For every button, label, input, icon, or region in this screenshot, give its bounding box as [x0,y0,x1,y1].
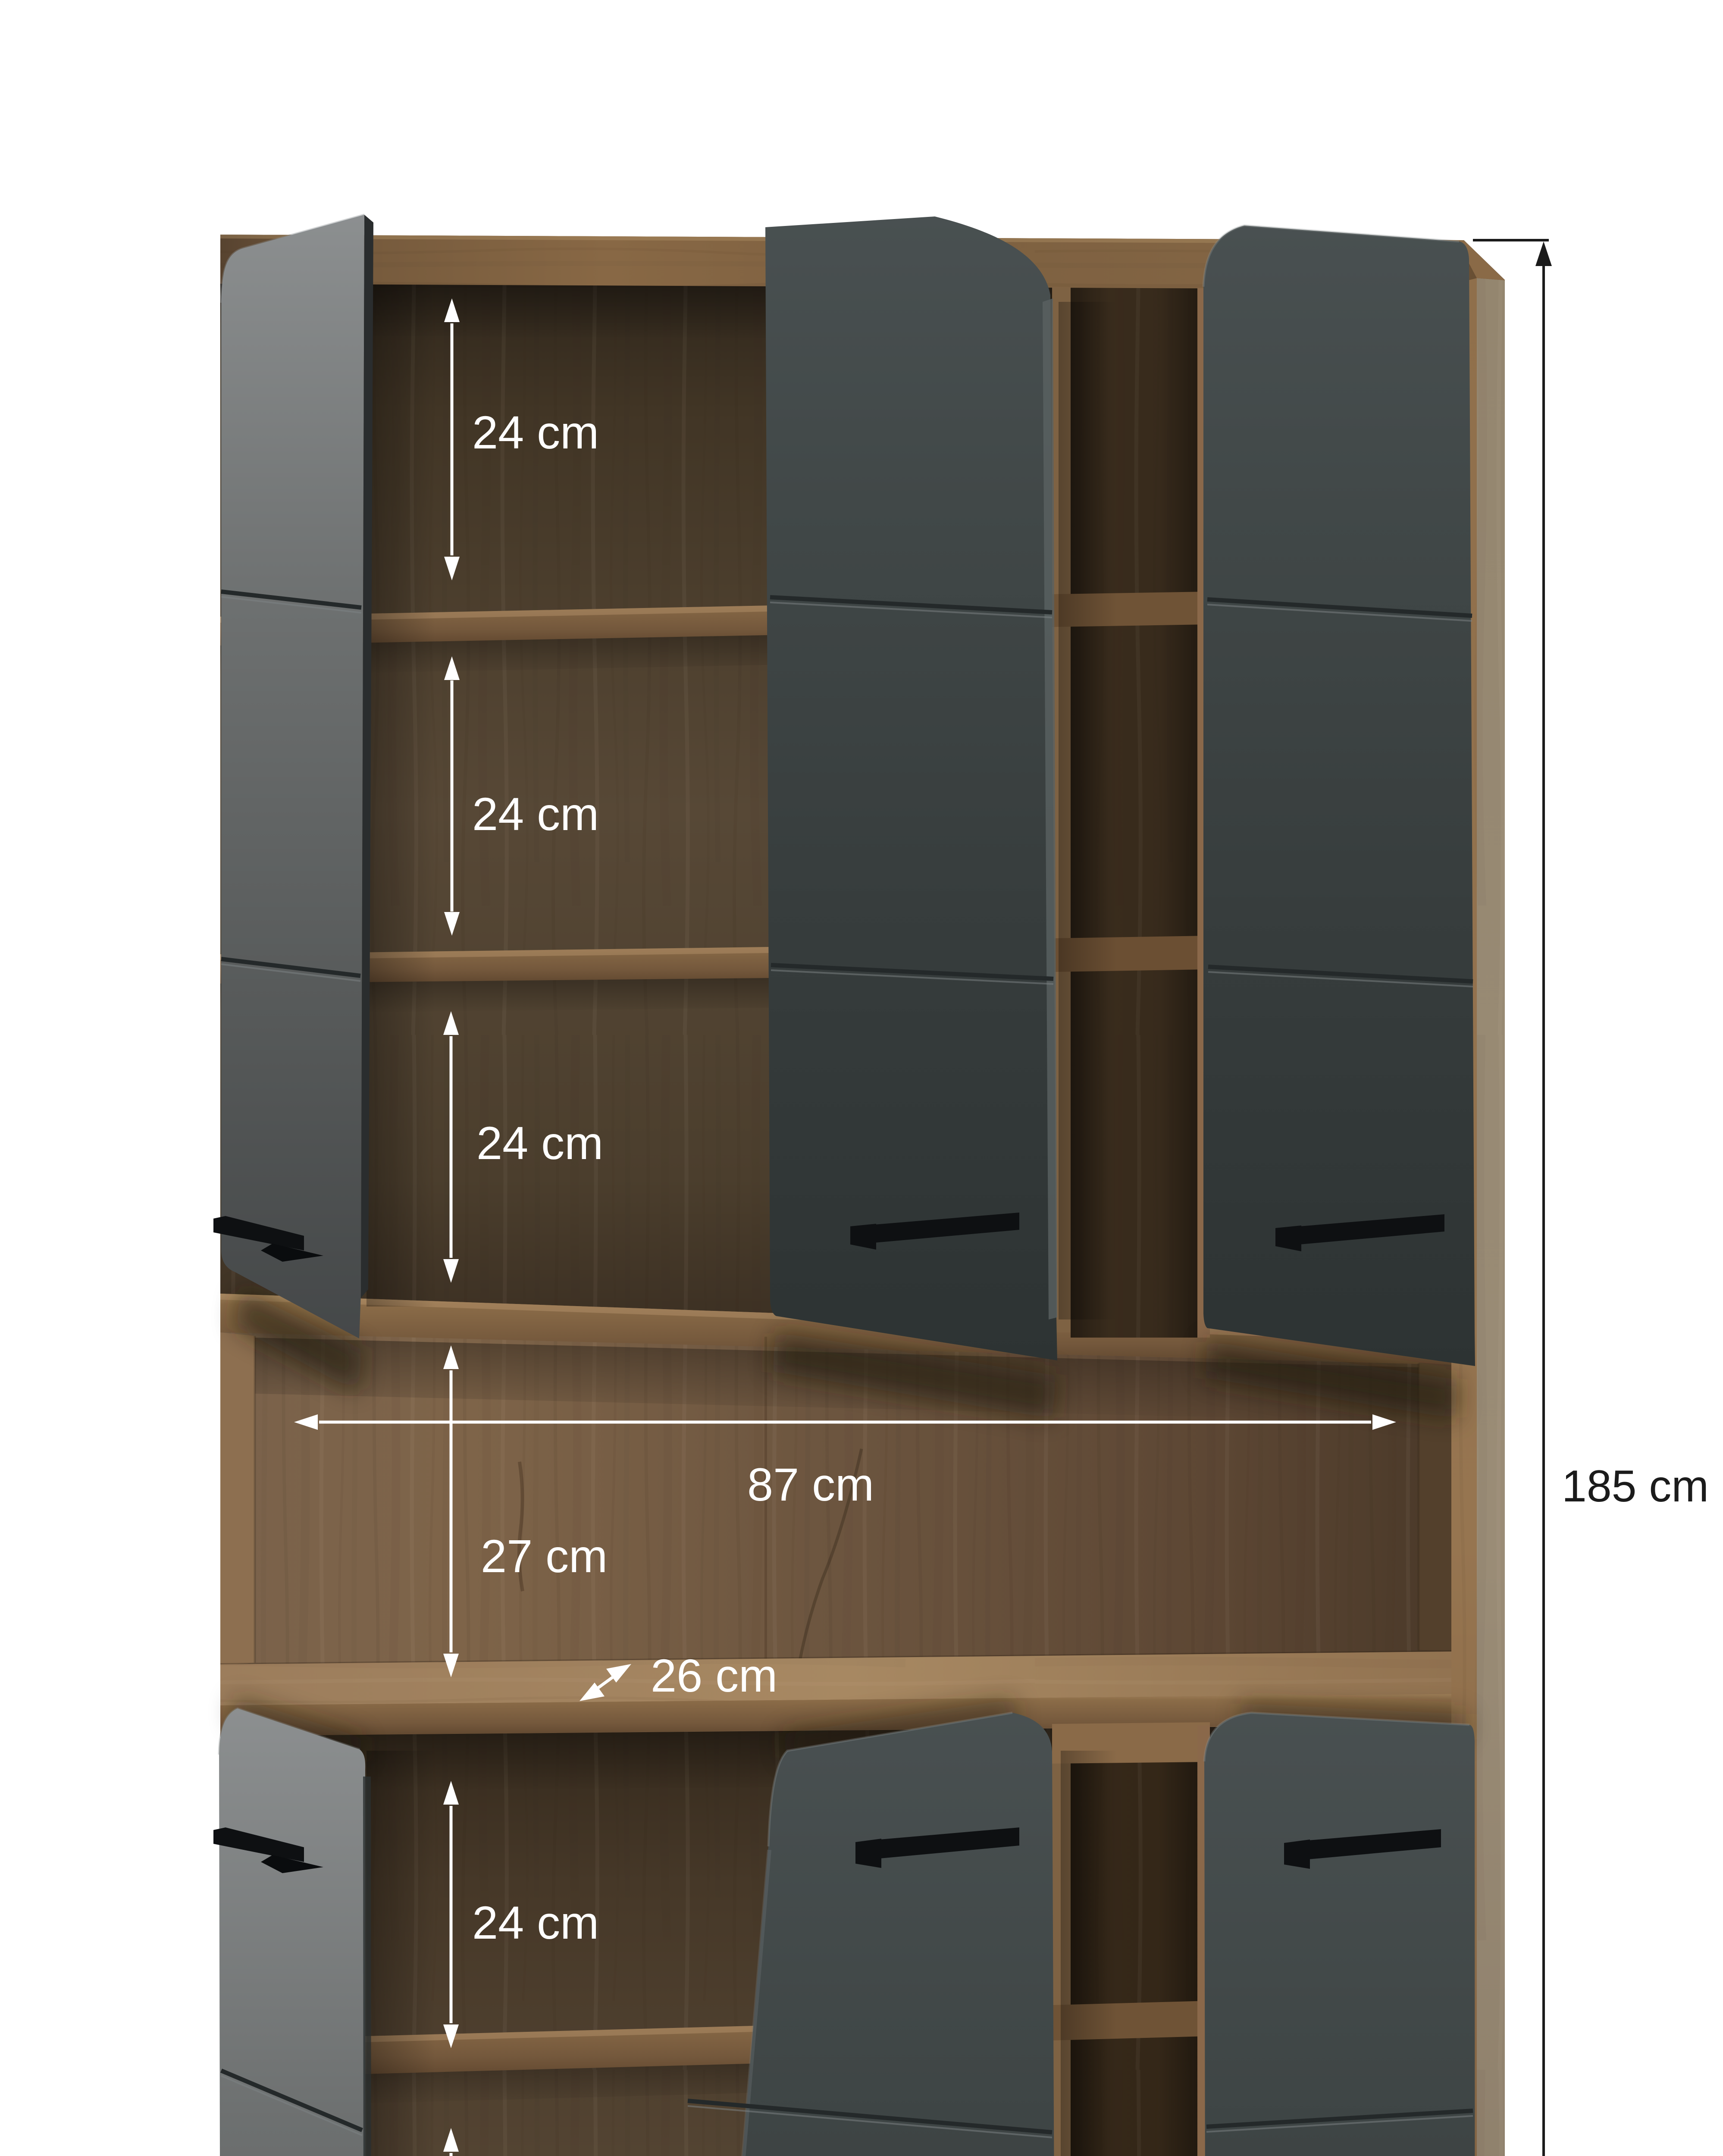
svg-text:24 cm: 24 cm [472,788,599,840]
svg-text:87 cm: 87 cm [747,1458,874,1510]
svg-text:26 cm: 26 cm [651,1649,777,1702]
svg-text:185 cm: 185 cm [1562,1461,1709,1511]
svg-text:24 cm: 24 cm [472,1896,599,1949]
svg-text:24 cm: 24 cm [476,1117,603,1169]
svg-text:24 cm: 24 cm [472,406,599,458]
svg-text:27 cm: 27 cm [481,1530,608,1582]
